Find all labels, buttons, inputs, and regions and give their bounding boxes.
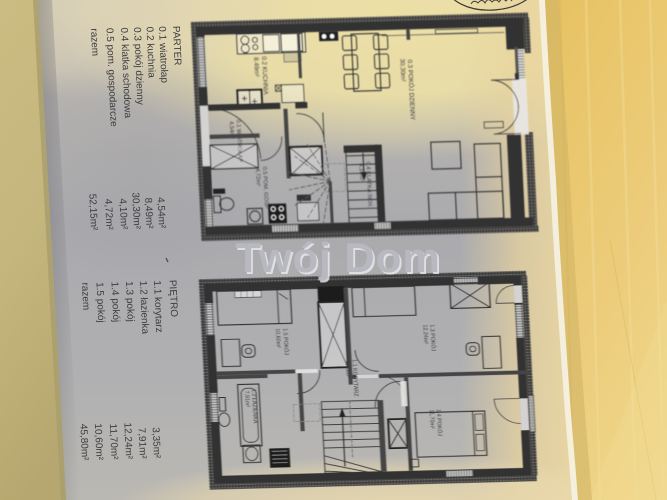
svg-text:10,60m²: 10,60m² [92, 423, 105, 461]
svg-text:4,10m²: 4,10m² [357, 163, 364, 181]
svg-text:razem: razem [88, 28, 100, 56]
svg-text:1.4 POKÓJ: 1.4 POKÓJ [435, 409, 444, 436]
svg-text:30,30m²: 30,30m² [129, 192, 142, 230]
svg-text:PIĘTRO: PIĘTRO [167, 280, 180, 318]
svg-text:30,30m²: 30,30m² [398, 59, 406, 82]
svg-text:razem: razem [79, 282, 91, 310]
svg-text:1.1 korytarz: 1.1 korytarz [151, 280, 164, 333]
svg-text:11,70m²: 11,70m² [428, 410, 435, 429]
svg-text:1.4 pokój: 1.4 pokój [109, 281, 122, 322]
svg-text:3,35m²: 3,35m² [343, 361, 350, 378]
svg-text:PARTER: PARTER [170, 26, 183, 66]
svg-text:8,49m²: 8,49m² [142, 197, 154, 229]
svg-text:1.3 pokój: 1.3 pokój [123, 281, 136, 322]
svg-text:4,72m²: 4,72m² [102, 199, 114, 231]
svg-text:12,24m²: 12,24m² [421, 324, 428, 344]
svg-text:4,54m²: 4,54m² [155, 197, 167, 229]
svg-text:10,60m²: 10,60m² [274, 328, 281, 348]
svg-text:4,72m²: 4,72m² [254, 168, 261, 186]
svg-text:45,80m²: 45,80m² [77, 424, 90, 462]
svg-text:7,91m²: 7,91m² [136, 427, 148, 459]
svg-text:8.49m²: 8.49m² [252, 57, 260, 77]
svg-text:12,24m²: 12,24m² [121, 422, 134, 460]
svg-text:1.3 POKÓJ: 1.3 POKÓJ [429, 324, 438, 351]
svg-text:11,70m²: 11,70m² [107, 423, 120, 460]
svg-text:4,10m²: 4,10m² [117, 198, 129, 230]
svg-text:1.5 POKÓJ: 1.5 POKÓJ [281, 328, 290, 355]
svg-text:Twój Dom: Twój Dom [235, 234, 441, 281]
svg-text:7,91m²: 7,91m² [243, 391, 250, 408]
svg-text:1.5 pokój: 1.5 pokój [94, 282, 107, 323]
svg-text:1.2 łazienka: 1.2 łazienka [137, 281, 150, 335]
svg-text:0.2 kuchnia: 0.2 kuchnia [144, 26, 157, 78]
svg-text:52,15m²: 52,15m² [86, 193, 99, 231]
svg-text:3,35m²: 3,35m² [150, 427, 162, 459]
